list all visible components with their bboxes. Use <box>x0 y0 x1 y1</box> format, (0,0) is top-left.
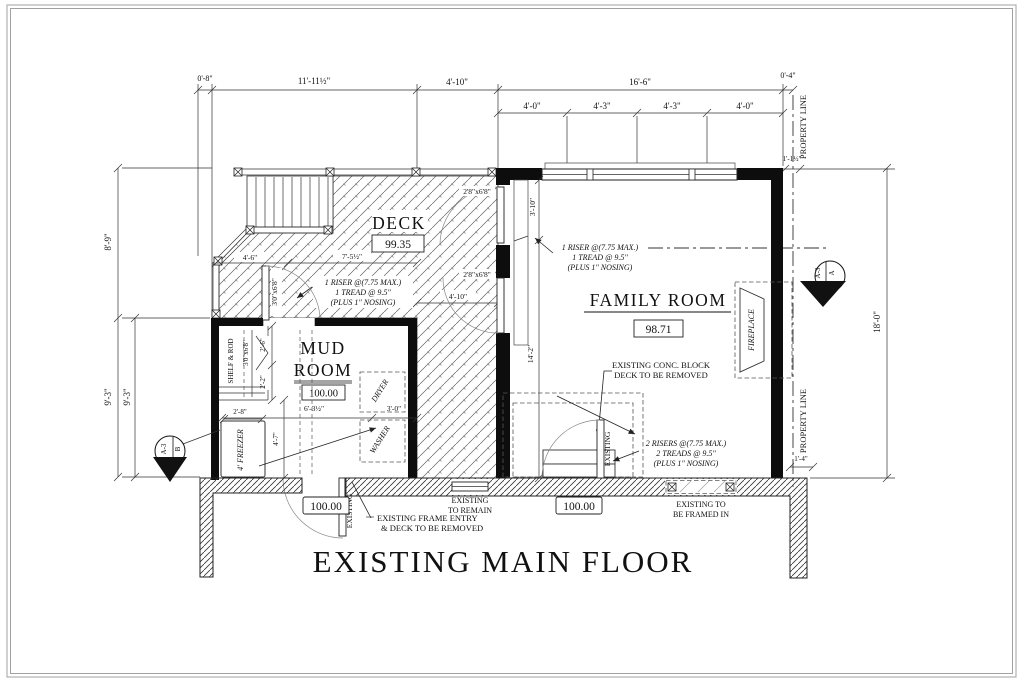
dim-top-11-11: 11'-11½" <box>298 76 331 86</box>
family-lower-door-leaf <box>497 278 504 333</box>
closet-door-size: 3'0"x6'8" <box>242 340 250 366</box>
wall <box>408 326 417 478</box>
drawing-sheet: 0'-8" 11'-11½" 4'-10" 16'-6" 0'-4" 4'-0"… <box>0 0 1024 683</box>
window-mullion <box>587 169 593 180</box>
wall <box>771 168 783 478</box>
wall <box>510 168 542 180</box>
section-b-sheet: A-3 <box>160 443 168 454</box>
existing-door-label-family: EXISTING <box>603 431 612 466</box>
deck-door-leaf <box>262 266 269 320</box>
dim-landing: 3'-10" <box>528 198 537 216</box>
riser-note-steps-2: 2 TREADS @ 9.5" <box>656 449 716 458</box>
dim-mud-width: 6'-3½" <box>304 404 324 413</box>
railing-post-icon <box>212 310 220 318</box>
property-line-label-bottom: PROPERTY LINE <box>798 389 808 453</box>
frame-entry-note-2: & DECK TO BE REMOVED <box>381 523 483 533</box>
window-sill <box>545 163 735 169</box>
conc-note-1: EXISTING CONC. BLOCK <box>612 360 711 370</box>
dim-win-4: 4'-0" <box>736 101 754 111</box>
dim-right-18-0: 18'-0" <box>872 311 882 333</box>
wall <box>211 318 219 480</box>
patio-level: 100.00 <box>563 501 595 513</box>
railing-post-icon <box>488 168 496 176</box>
window-mullion <box>689 169 695 180</box>
dim-deck-4-10: 4'-10" <box>449 292 467 301</box>
remain-note-1: EXISTING <box>452 496 489 505</box>
riser-note-steps-3: (PLUS 1" NOSING) <box>654 459 719 468</box>
riser-note-landing-1: 1 RISER @(7.75 MAX.) <box>562 243 639 252</box>
dim-closet-door: 2'-6" <box>259 338 267 352</box>
section-a-sheet: A-3 <box>814 267 822 278</box>
dim-right-1-4: 1'-4" <box>794 455 808 463</box>
deck-stairs <box>247 176 333 227</box>
dim-top-16-6: 16'-6" <box>629 77 651 87</box>
dim-win-3: 4'-3" <box>663 101 681 111</box>
property-line-label-top: PROPERTY LINE <box>798 95 808 159</box>
freezer-label: 4' FREEZER <box>236 429 245 471</box>
dim-deck-7-5: 7'-5½" <box>342 252 362 261</box>
shelf-rod-label: SHELF & ROD <box>227 338 235 383</box>
mud-room-label-1: MUD <box>300 338 345 358</box>
framed-in-note-1: EXISTING TO <box>676 500 725 509</box>
riser-note-steps-1: 2 RISERS @(7.75 MAX.) <box>646 439 727 448</box>
framing-post-icon <box>726 483 734 491</box>
riser-note-deck-3: (PLUS 1" NOSING) <box>331 298 396 307</box>
railing-post-icon <box>246 226 254 234</box>
dim-win-2: 4'-3" <box>593 101 611 111</box>
section-a-letter: A <box>828 270 836 275</box>
frame-entry-note-1: EXISTING FRAME ENTRY <box>377 513 478 523</box>
family-lower-door-size: 2'8"x6'8" <box>463 270 491 279</box>
mud-elevation: 100.00 <box>309 389 338 400</box>
family-upper-door-size: 2'8"x6'8" <box>463 187 491 196</box>
riser-note-landing-3: (PLUS 1" NOSING) <box>568 263 633 272</box>
family-elevation: 98.71 <box>646 324 672 336</box>
dim-left-9-3a: 9'-3" <box>103 388 113 406</box>
wall <box>496 245 510 278</box>
riser-note-landing-2: 1 TREAD @ 9.5" <box>572 253 628 262</box>
wall <box>315 318 417 326</box>
riser-note-deck-1: 1 RISER @(7.75 MAX.) <box>325 278 402 287</box>
family-room-label: FAMILY ROOM <box>590 290 727 310</box>
railing-post-icon <box>412 168 420 176</box>
section-b-letter: B <box>174 446 182 451</box>
railing-post-icon <box>324 226 332 234</box>
framed-in-note-2: BE FRAMED IN <box>673 510 729 519</box>
dim-closet-side: 2'-2" <box>259 375 267 389</box>
dim-deck-4-6: 4'-6" <box>243 253 257 262</box>
dim-family-depth: 14'-2" <box>526 345 535 363</box>
drawing-title: EXISTING MAIN FLOOR <box>313 544 694 579</box>
floor-plan-svg: 0'-8" 11'-11½" 4'-10" 16'-6" 0'-4" 4'-0"… <box>0 0 1024 683</box>
deck-elevation: 99.35 <box>385 239 411 251</box>
wall <box>496 168 510 185</box>
dim-win-1: 4'-0" <box>523 101 541 111</box>
railing-post-icon <box>326 168 334 176</box>
dim-top-0-8: 0'-8" <box>197 74 212 83</box>
dim-mud-depth: 4'-7" <box>272 432 280 446</box>
dim-freezer: 2'-8" <box>233 408 247 416</box>
dim-top-0-4: 0'-4" <box>780 71 795 80</box>
conc-note-2: DECK TO BE REMOVED <box>614 370 707 380</box>
railing-post-icon <box>234 168 242 176</box>
deck-door-size: 3'0"x6'8" <box>270 278 279 306</box>
dim-left-8-9: 8'-9" <box>103 233 113 251</box>
stair-landing <box>514 180 528 345</box>
framing-post-icon <box>668 483 676 491</box>
deck-label: DECK <box>372 213 426 233</box>
riser-note-deck-2: 1 TREAD @ 9.5" <box>335 288 391 297</box>
dim-top-4-10: 4'-10" <box>446 77 468 87</box>
entry-level: 100.00 <box>310 501 342 513</box>
family-upper-door-leaf <box>497 187 504 243</box>
dim-left-9-3b: 9'-3" <box>122 388 132 406</box>
mud-room-label-2: ROOM <box>294 360 353 380</box>
fireplace-label: FIREPLACE <box>747 309 756 352</box>
